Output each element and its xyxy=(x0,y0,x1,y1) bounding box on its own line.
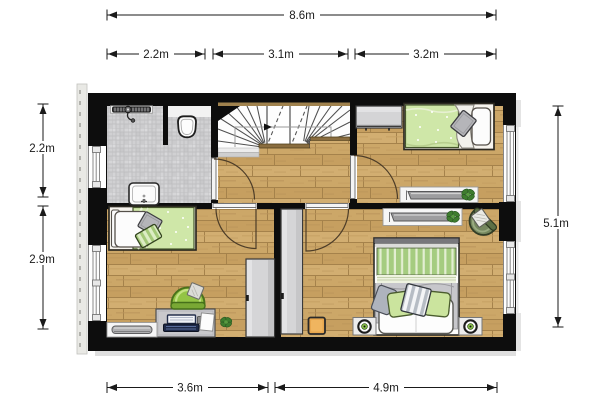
svg-text:2.2m: 2.2m xyxy=(143,49,169,61)
svg-text:2.2m: 2.2m xyxy=(29,143,55,155)
svg-text:5.1m: 5.1m xyxy=(543,218,569,230)
svg-text:3.1m: 3.1m xyxy=(268,49,294,61)
svg-text:4.9m: 4.9m xyxy=(373,383,399,395)
svg-text:8.6m: 8.6m xyxy=(289,10,315,22)
svg-text:2.9m: 2.9m xyxy=(29,254,55,266)
svg-text:3.6m: 3.6m xyxy=(177,383,203,395)
svg-text:3.2m: 3.2m xyxy=(413,49,439,61)
